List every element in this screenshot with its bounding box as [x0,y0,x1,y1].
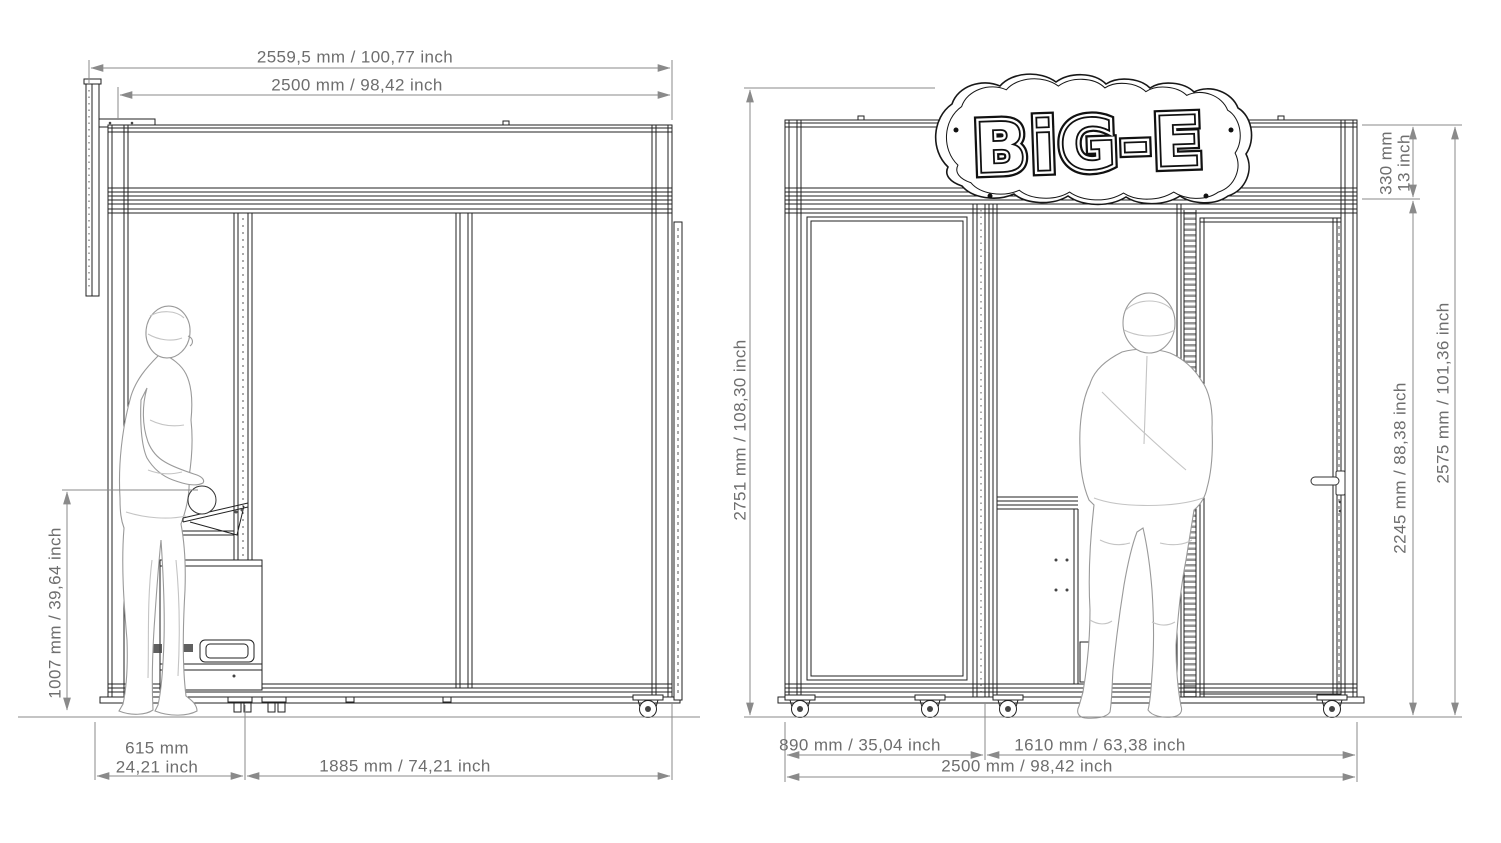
door-panel [1200,218,1341,698]
dim-label-sign-band-inch: 13 inch [1396,134,1413,192]
front-view-drawing: BiG-E BiG-E BiG-E [778,74,1364,718]
dimension-drawing: BiG-E BiG-E BiG-E [0,0,1501,843]
dim-label-sign-band-mm: 330 mm [1378,131,1395,195]
caster-wheel-icon [915,695,945,718]
dim-label-console-depth-mm: 615 mm [125,740,189,757]
dim-label-body-height: 2575 mm / 101,36 inch [1435,302,1452,483]
caster-wheel-icon [785,695,815,718]
dim-label-door-section: 2245 mm / 88,38 inch [1392,382,1409,553]
dim-label-total-width: 2500 mm / 98,42 inch [941,758,1112,775]
side-view-drawing [84,79,682,718]
dim-label-total-height: 2751 mm / 108,30 inch [732,339,749,520]
dim-label-right-bay: 1610 mm / 63,38 inch [1014,737,1185,754]
drawing-linework: BiG-E BiG-E BiG-E [0,0,1501,843]
big-e-sign: BiG-E BiG-E BiG-E [936,74,1252,204]
svg-text:BiG-E: BiG-E [973,100,1207,190]
door-edge-profile [674,222,682,700]
dim-label-console-height: 1007 mm / 39,64 inch [47,527,64,698]
dim-label-overall-width: 2559,5 mm / 100,77 inch [257,49,453,66]
dim-label-console-depth-inch: 24,21 inch [116,759,198,776]
caster-wheel-icon [633,695,663,718]
caster-wheel-icon [993,695,1023,718]
dim-label-left-bay: 890 mm / 35,04 inch [779,737,941,754]
front-divider-posts [973,204,997,697]
dim-label-body-width: 2500 mm / 98,42 inch [271,77,442,94]
caster-wheel-icon [1317,695,1347,718]
dim-label-panel-width: 1885 mm / 74,21 inch [319,758,490,775]
